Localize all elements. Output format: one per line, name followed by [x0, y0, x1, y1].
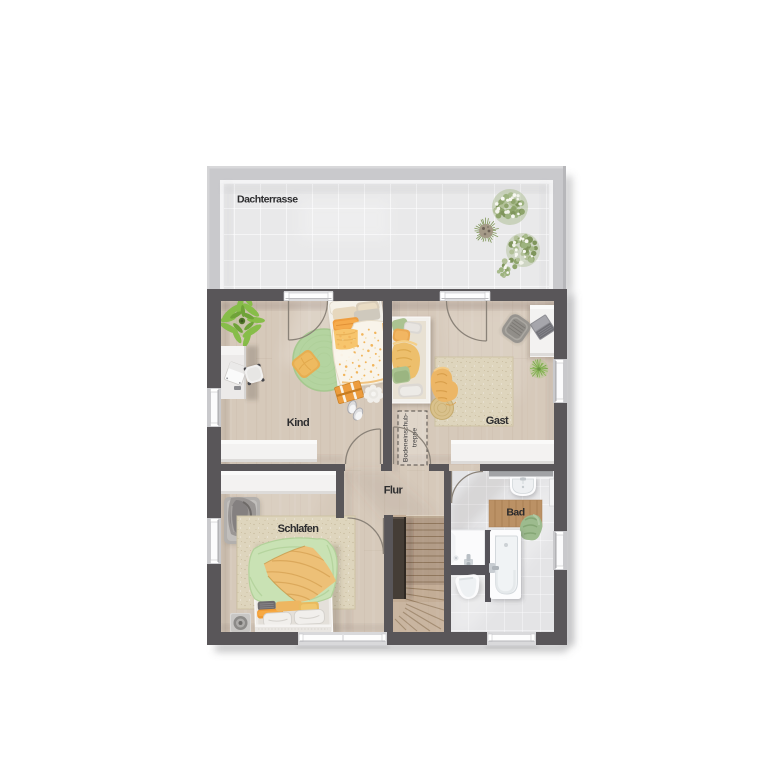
- svg-text:Kind: Kind: [287, 417, 309, 429]
- svg-text:Schlafen: Schlafen: [278, 523, 320, 535]
- svg-text:Gast: Gast: [486, 415, 509, 427]
- svg-text:Bad: Bad: [506, 507, 524, 519]
- svg-text:treppe: treppe: [412, 428, 419, 447]
- svg-text:Flur: Flur: [384, 485, 404, 497]
- svg-text:Dachterrasse: Dachterrasse: [237, 194, 298, 206]
- svg-text:Bodeneinschub-: Bodeneinschub-: [403, 413, 410, 462]
